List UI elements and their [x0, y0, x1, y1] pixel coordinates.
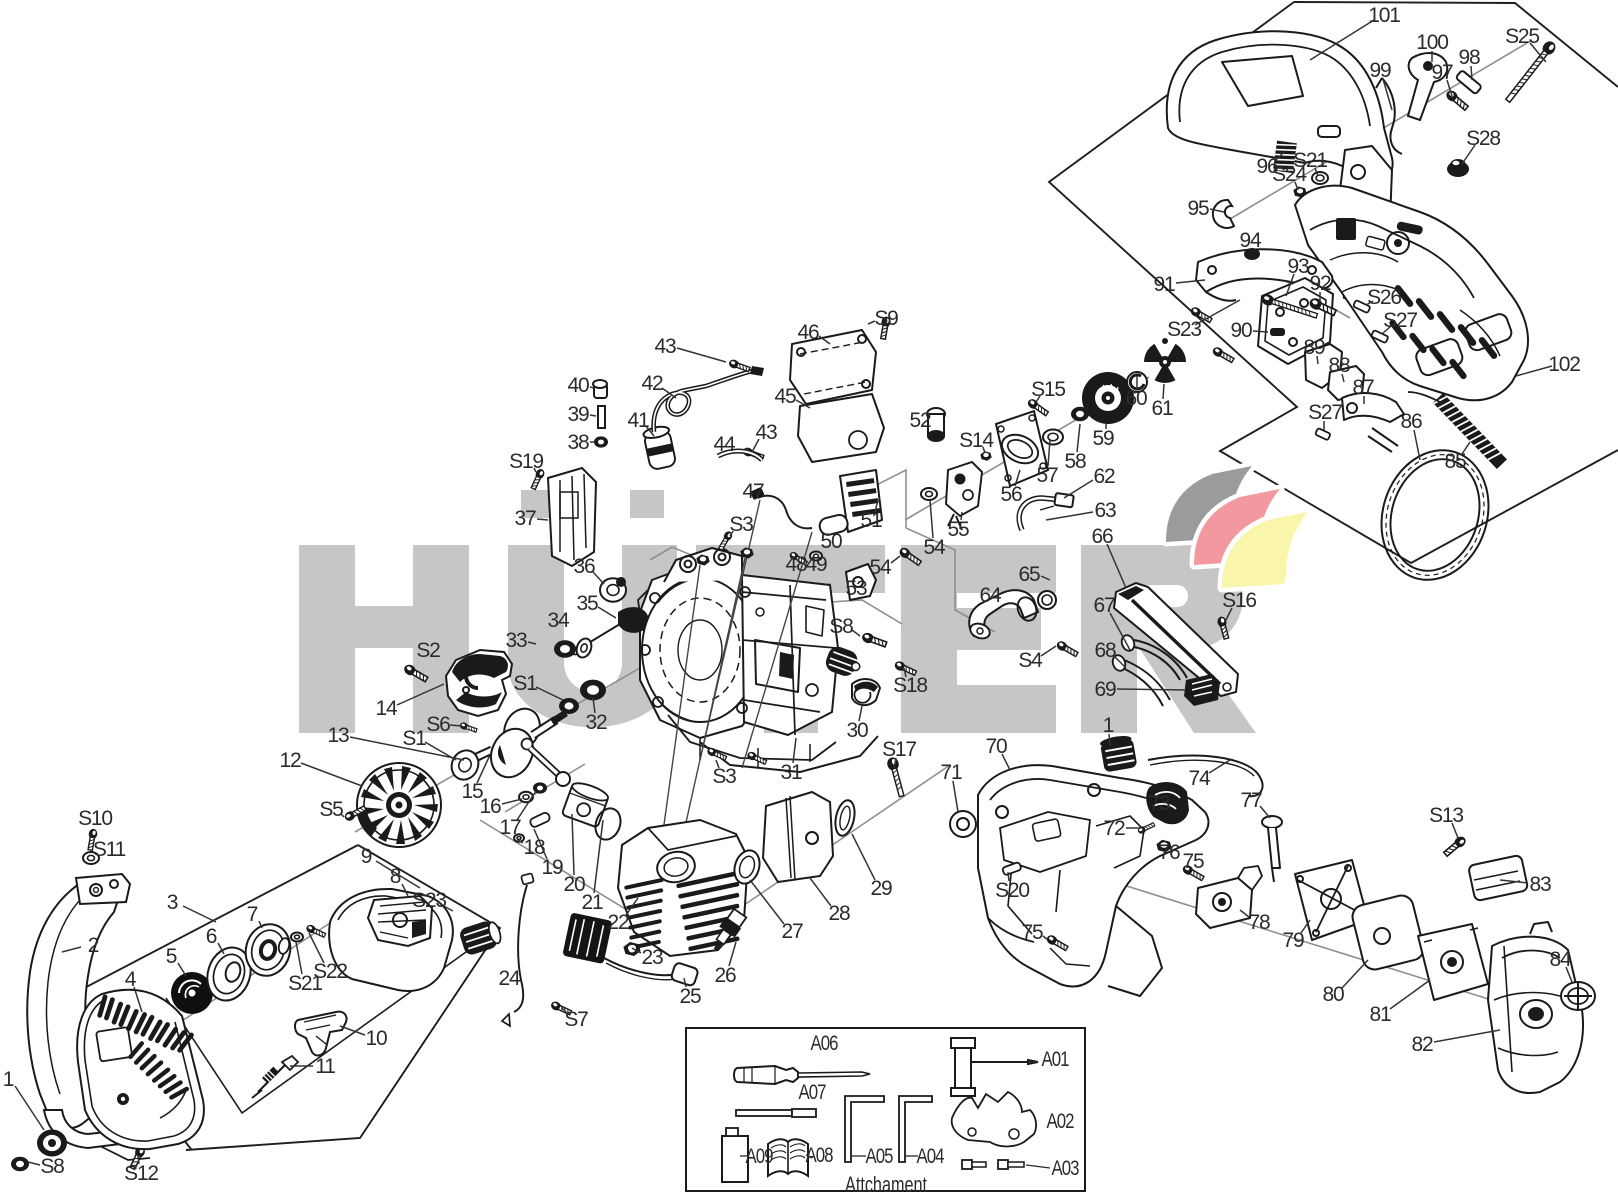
svg-text:100: 100	[1416, 31, 1448, 54]
svg-text:S9: S9	[874, 307, 898, 330]
svg-text:S8: S8	[829, 615, 853, 638]
svg-text:24: 24	[499, 967, 521, 990]
svg-text:10: 10	[366, 1027, 387, 1050]
svg-text:S3: S3	[729, 513, 753, 536]
svg-text:92: 92	[1310, 272, 1331, 295]
svg-text:99: 99	[1370, 59, 1391, 82]
svg-text:97: 97	[1432, 61, 1453, 84]
svg-text:50: 50	[821, 530, 842, 553]
svg-text:32: 32	[586, 711, 607, 734]
svg-text:19: 19	[542, 856, 563, 879]
svg-text:83: 83	[1530, 873, 1551, 896]
svg-text:80: 80	[1323, 983, 1344, 1006]
svg-text:S18: S18	[893, 674, 927, 697]
svg-text:31: 31	[781, 761, 802, 784]
svg-text:S7: S7	[564, 1008, 588, 1031]
svg-text:52: 52	[910, 409, 931, 432]
svg-text:A04: A04	[917, 1145, 945, 1168]
svg-text:88: 88	[1329, 354, 1350, 377]
svg-text:8: 8	[390, 865, 401, 888]
svg-text:35: 35	[577, 592, 598, 615]
svg-text:93: 93	[1288, 255, 1309, 278]
svg-text:81: 81	[1370, 1003, 1391, 1026]
svg-text:S2: S2	[416, 639, 440, 662]
svg-text:68: 68	[1095, 639, 1116, 662]
svg-text:S27: S27	[1383, 309, 1417, 332]
svg-text:61: 61	[1152, 397, 1173, 420]
svg-text:1: 1	[1103, 714, 1114, 737]
svg-text:S19: S19	[509, 450, 543, 473]
svg-text:16: 16	[480, 795, 501, 818]
svg-text:53: 53	[846, 577, 867, 600]
svg-text:46: 46	[798, 321, 819, 344]
svg-text:S23: S23	[1167, 318, 1201, 341]
svg-text:S3: S3	[712, 765, 736, 788]
svg-text:29: 29	[871, 877, 892, 900]
svg-text:1: 1	[3, 1068, 14, 1091]
svg-text:S27: S27	[1308, 401, 1342, 424]
svg-text:78: 78	[1249, 911, 1270, 934]
svg-text:3: 3	[167, 891, 178, 914]
svg-text:S11: S11	[93, 838, 126, 861]
svg-text:76: 76	[1159, 841, 1180, 864]
svg-text:67: 67	[1094, 594, 1115, 617]
svg-text:22: 22	[608, 911, 629, 934]
svg-text:6: 6	[206, 925, 217, 948]
svg-text:S10: S10	[78, 807, 112, 830]
svg-text:25: 25	[680, 985, 701, 1008]
svg-text:41: 41	[628, 409, 649, 432]
svg-text:37: 37	[515, 507, 536, 530]
svg-text:91: 91	[1154, 273, 1175, 296]
svg-text:54: 54	[924, 536, 946, 559]
svg-text:64: 64	[980, 584, 1002, 607]
svg-text:102: 102	[1548, 353, 1580, 376]
svg-text:47: 47	[743, 480, 764, 503]
svg-text:S16: S16	[1222, 589, 1256, 612]
svg-text:S15: S15	[1031, 378, 1065, 401]
svg-text:89: 89	[1304, 336, 1325, 359]
svg-text:12: 12	[280, 749, 301, 772]
svg-text:26: 26	[715, 964, 736, 987]
svg-text:63: 63	[1095, 499, 1116, 522]
svg-text:9: 9	[361, 845, 372, 868]
svg-text:S8: S8	[40, 1155, 64, 1178]
svg-text:A05: A05	[866, 1145, 893, 1168]
svg-text:4: 4	[125, 968, 137, 991]
svg-text:A02: A02	[1047, 1110, 1074, 1133]
svg-text:38: 38	[568, 431, 589, 454]
svg-text:82: 82	[1412, 1033, 1433, 1056]
svg-text:54: 54	[870, 556, 892, 579]
svg-text:S20: S20	[995, 879, 1029, 902]
svg-text:33: 33	[506, 629, 527, 652]
svg-text:48: 48	[786, 553, 807, 576]
svg-text:S6: S6	[426, 713, 450, 736]
svg-text:84: 84	[1550, 948, 1572, 971]
svg-text:7: 7	[247, 903, 258, 926]
svg-text:28: 28	[829, 902, 850, 925]
svg-text:5: 5	[166, 945, 177, 968]
svg-text:39: 39	[568, 403, 589, 426]
svg-text:30: 30	[847, 719, 868, 742]
svg-text:101: 101	[1368, 4, 1400, 27]
svg-text:43: 43	[655, 335, 676, 358]
svg-text:13: 13	[328, 724, 349, 747]
svg-text:A06: A06	[811, 1032, 838, 1055]
svg-text:14: 14	[376, 697, 398, 720]
svg-text:27: 27	[782, 920, 803, 943]
svg-text:87: 87	[1353, 376, 1374, 399]
svg-text:75: 75	[1022, 921, 1043, 944]
svg-text:S14: S14	[959, 429, 994, 452]
svg-text:49: 49	[806, 553, 827, 576]
svg-text:79: 79	[1283, 929, 1304, 952]
svg-text:45: 45	[775, 385, 796, 408]
svg-text:55: 55	[948, 518, 969, 541]
svg-text:A09: A09	[746, 1145, 773, 1168]
svg-text:60: 60	[1126, 387, 1147, 410]
svg-text:Attchament: Attchament	[845, 1172, 927, 1196]
svg-text:72: 72	[1104, 817, 1125, 840]
svg-text:70: 70	[986, 735, 1007, 758]
svg-text:51: 51	[861, 509, 882, 532]
svg-text:A01: A01	[1042, 1048, 1069, 1071]
svg-text:23: 23	[642, 946, 663, 969]
svg-text:95: 95	[1188, 197, 1209, 220]
svg-text:S17: S17	[882, 738, 916, 761]
svg-text:A08: A08	[806, 1144, 833, 1167]
svg-text:A03: A03	[1052, 1157, 1079, 1180]
svg-text:S24: S24	[1272, 163, 1307, 186]
svg-text:65: 65	[1019, 563, 1040, 586]
svg-text:73: 73	[1149, 792, 1170, 815]
svg-text:58: 58	[1065, 450, 1086, 473]
svg-text:86: 86	[1401, 410, 1422, 433]
svg-text:56: 56	[1001, 483, 1022, 506]
svg-text:43: 43	[756, 421, 777, 444]
svg-text:44: 44	[714, 433, 736, 456]
svg-text:69: 69	[1095, 678, 1116, 701]
svg-text:59: 59	[1093, 427, 1114, 450]
svg-text:94: 94	[1240, 229, 1262, 252]
svg-text:S1: S1	[513, 672, 537, 695]
svg-text:74: 74	[1189, 767, 1211, 790]
svg-text:S21: S21	[288, 972, 322, 995]
svg-text:S5: S5	[319, 798, 343, 821]
svg-text:S23: S23	[412, 889, 446, 912]
svg-text:85: 85	[1445, 450, 1466, 473]
svg-text:17: 17	[500, 816, 521, 839]
svg-text:42: 42	[642, 372, 663, 395]
svg-text:S13: S13	[1429, 804, 1463, 827]
svg-text:66: 66	[1092, 525, 1113, 548]
svg-text:90: 90	[1231, 319, 1252, 342]
svg-text:57: 57	[1037, 464, 1058, 487]
svg-text:21: 21	[582, 891, 603, 914]
svg-text:36: 36	[574, 555, 595, 578]
svg-text:62: 62	[1094, 465, 1115, 488]
svg-text:S25: S25	[1505, 25, 1539, 48]
svg-text:S1: S1	[402, 727, 426, 750]
svg-text:75: 75	[1183, 850, 1204, 873]
svg-text:98: 98	[1459, 46, 1480, 69]
svg-text:11: 11	[315, 1055, 335, 1078]
svg-text:S4: S4	[1018, 649, 1043, 672]
svg-text:40: 40	[568, 374, 589, 397]
svg-text:71: 71	[941, 761, 962, 784]
svg-text:2: 2	[88, 934, 99, 957]
svg-text:34: 34	[548, 609, 570, 632]
svg-text:S26: S26	[1367, 286, 1401, 309]
svg-text:S28: S28	[1466, 127, 1500, 150]
svg-text:A07: A07	[799, 1081, 826, 1104]
svg-text:77: 77	[1241, 789, 1262, 812]
svg-text:S12: S12	[124, 1162, 158, 1185]
